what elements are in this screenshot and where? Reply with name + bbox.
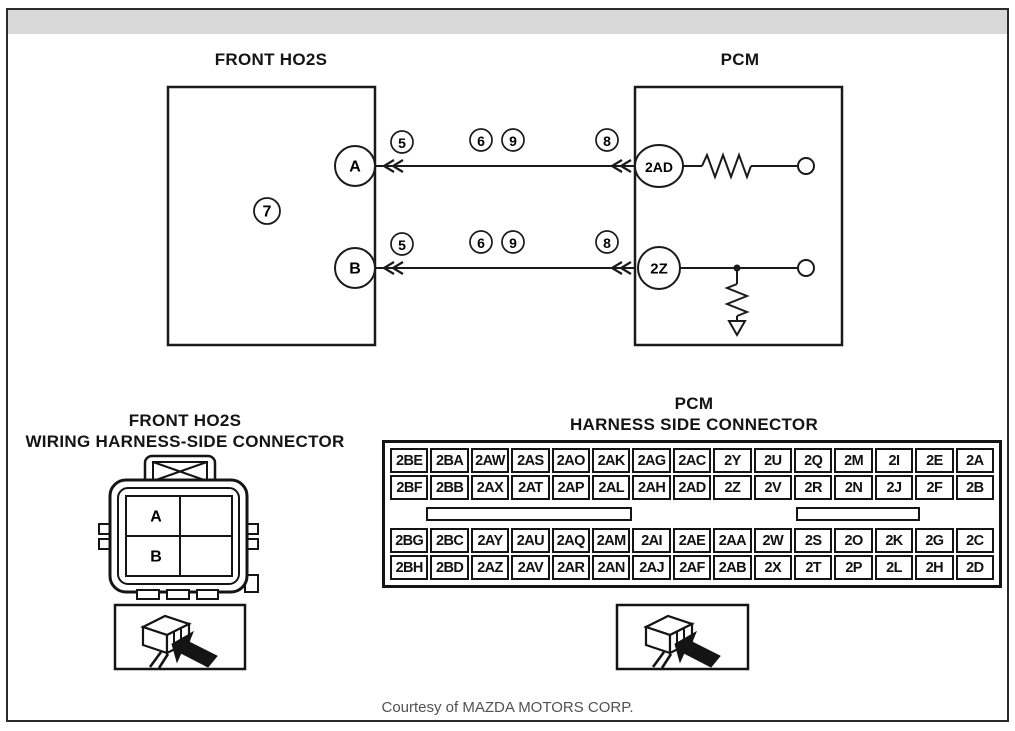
pcm-pin-block-bottom: 2BG2BC2AY2AU2AQ2AM2AI2AE2AA2W2S2O2K2G2C2… — [390, 528, 994, 580]
pcm-pin-cell: 2AW — [471, 448, 509, 473]
pcm-pin-cell: 2J — [875, 475, 913, 500]
pcm-pin-cell: 2AM — [592, 528, 630, 553]
pcm-pin-cell: 2L — [875, 555, 913, 580]
pcm-connector-mid-band — [390, 502, 994, 526]
svg-text:B: B — [349, 261, 361, 278]
pcm-pin-cell: 2C — [956, 528, 994, 553]
pcm-pin-cell: 2AS — [511, 448, 549, 473]
pcm-pin-cell: 2BD — [430, 555, 468, 580]
svg-text:9: 9 — [509, 133, 517, 149]
pcm-pin-cell: 2AK — [592, 448, 630, 473]
pcm-connector-slot-right — [796, 507, 920, 521]
pcm-connector-title: PCM HARNESS SIDE CONNECTOR — [529, 393, 859, 435]
pcm-pin-cell: 2K — [875, 528, 913, 553]
courtesy-text: Courtesy of MAZDA MOTORS CORP. — [0, 699, 1015, 716]
pcm-pin-cell: 2BG — [390, 528, 428, 553]
pcm-pin-cell: 2AB — [713, 555, 751, 580]
pcm-pin-cell: 2H — [915, 555, 953, 580]
pcm-pin-cell: 2A — [956, 448, 994, 473]
pcm-pin-cell: 2AQ — [552, 528, 590, 553]
pcm-pin-cell: 2G — [915, 528, 953, 553]
ho2s-bottom-tab — [137, 590, 159, 599]
schematic-artwork: 7 A B 2AD 2Z 5 — [0, 0, 1015, 731]
wire-a-marker-8: 8 — [596, 129, 618, 151]
pcm-pin-cell: 2AA — [713, 528, 751, 553]
pcm-pin-cell: 2AE — [673, 528, 711, 553]
svg-text:9: 9 — [509, 235, 517, 251]
pcm-pin-cell: 2AC — [673, 448, 711, 473]
pcm-pin-cell: 2AU — [511, 528, 549, 553]
svg-text:8: 8 — [603, 133, 611, 149]
pcm-connector-title-line1: PCM — [529, 393, 859, 414]
wire-b-marker-8: 8 — [596, 231, 618, 253]
pcm-pin-cell: 2D — [956, 555, 994, 580]
pcm-pin-cell: 2B — [956, 475, 994, 500]
pcm-pin-cell: 2AD — [673, 475, 711, 500]
svg-text:5: 5 — [398, 237, 406, 253]
pcm-pin-cell: 2O — [834, 528, 872, 553]
pcm-pin-cell: 2AF — [673, 555, 711, 580]
ho2s-connector-drawing: A B — [99, 456, 258, 599]
pcm-pin-cell: 2Q — [794, 448, 832, 473]
pcm-connector-view-icon-box — [617, 605, 748, 669]
pcm-pin-block-top: 2BE2BA2AW2AS2AO2AK2AG2AC2Y2U2Q2M2I2E2A2B… — [390, 448, 994, 500]
pcm-pin-cell: 2AT — [511, 475, 549, 500]
pcm-pin-cell: 2AO — [552, 448, 590, 473]
pcm-pin-cell: 2AR — [552, 555, 590, 580]
ho2s-bottom-tab — [197, 590, 218, 599]
pcm-pin-cell: 2F — [915, 475, 953, 500]
pcm-pin-cell: 2AY — [471, 528, 509, 553]
pcm-pin-cell: 2X — [754, 555, 792, 580]
pcm-harness-connector-grid: 2BE2BA2AW2AS2AO2AK2AG2AC2Y2U2Q2M2I2E2A2B… — [382, 440, 1002, 588]
pcm-pin-cell: 2I — [875, 448, 913, 473]
pcm-pin-cell: 2R — [794, 475, 832, 500]
wire-a-marker-6: 6 — [470, 129, 492, 151]
svg-text:6: 6 — [477, 133, 485, 149]
terminal-2z: 2Z — [638, 247, 680, 289]
pcm-pin-cell: 2U — [754, 448, 792, 473]
wire-b-marker-6: 6 — [470, 231, 492, 253]
pcm-pin-cell: 2AX — [471, 475, 509, 500]
pcm-pin-cell: 2AP — [552, 475, 590, 500]
pcm-pin-cell: 2AH — [632, 475, 670, 500]
svg-text:5: 5 — [398, 135, 406, 151]
terminal-2ad: 2AD — [635, 145, 683, 187]
component-ref-7: 7 — [254, 198, 280, 224]
pcm-title: PCM — [640, 50, 840, 70]
wiring-diagram-page: 7 A B 2AD 2Z 5 — [0, 0, 1015, 731]
pcm-pin-cell: 2AV — [511, 555, 549, 580]
svg-text:8: 8 — [603, 235, 611, 251]
front-ho2s-title: FRONT HO2S — [171, 50, 371, 70]
pcm-pin-cell: 2P — [834, 555, 872, 580]
pcm-pin-cell: 2Z — [713, 475, 751, 500]
pcm-pin-cell: 2BA — [430, 448, 468, 473]
wire-a-marker-5: 5 — [391, 131, 413, 153]
pcm-connector-title-line2: HARNESS SIDE CONNECTOR — [529, 414, 859, 435]
pcm-pin-cell: 2BE — [390, 448, 428, 473]
pcm-pin-cell: 2E — [915, 448, 953, 473]
pcm-connector-slot-left — [426, 507, 632, 521]
pcm-pin-cell: 2AG — [632, 448, 670, 473]
ho2s-connector-title-line2: WIRING HARNESS-SIDE CONNECTOR — [15, 431, 355, 452]
wire-b-marker-5: 5 — [391, 233, 413, 255]
pcm-pin-cell: 2S — [794, 528, 832, 553]
svg-text:7: 7 — [263, 204, 272, 221]
pcm-pin-cell: 2N — [834, 475, 872, 500]
pcm-pin-cell: 2BB — [430, 475, 468, 500]
svg-text:2Z: 2Z — [650, 261, 668, 278]
pcm-pin-cell: 2AZ — [471, 555, 509, 580]
pcm-pin-cell: 2BF — [390, 475, 428, 500]
pcm-internal-ground-b — [680, 260, 814, 335]
ground-symbol — [729, 321, 745, 335]
pcm-internal-resistor-a — [683, 155, 814, 177]
pcm-pin-cell: 2V — [754, 475, 792, 500]
ho2s-pin-a-label: A — [150, 509, 162, 526]
terminal-a: A — [335, 146, 375, 186]
wire-a-marker-9: 9 — [502, 129, 524, 151]
svg-text:6: 6 — [477, 235, 485, 251]
pcm-box — [635, 87, 842, 345]
pcm-pin-cell: 2AI — [632, 528, 670, 553]
svg-text:2AD: 2AD — [645, 159, 673, 175]
ho2s-connector-view-icon-box — [115, 605, 245, 669]
ho2s-connector-title-line1: FRONT HO2S — [15, 410, 355, 431]
pcm-pin-cell: 2AN — [592, 555, 630, 580]
ho2s-pin-b-label: B — [150, 549, 162, 566]
wire-b-marker-9: 9 — [502, 231, 524, 253]
pcm-pin-cell: 2AJ — [632, 555, 670, 580]
pcm-pin-cell: 2Y — [713, 448, 751, 473]
pcm-pin-cell: 2AL — [592, 475, 630, 500]
svg-text:A: A — [349, 159, 361, 176]
pcm-pin-cell: 2T — [794, 555, 832, 580]
ho2s-connector-title: FRONT HO2S WIRING HARNESS-SIDE CONNECTOR — [15, 410, 355, 452]
pcm-pin-cell: 2BH — [390, 555, 428, 580]
pcm-pin-cell: 2W — [754, 528, 792, 553]
pcm-pin-cell: 2M — [834, 448, 872, 473]
pcm-pin-cell: 2BC — [430, 528, 468, 553]
ho2s-bottom-tab — [167, 590, 189, 599]
terminal-b: B — [335, 248, 375, 288]
